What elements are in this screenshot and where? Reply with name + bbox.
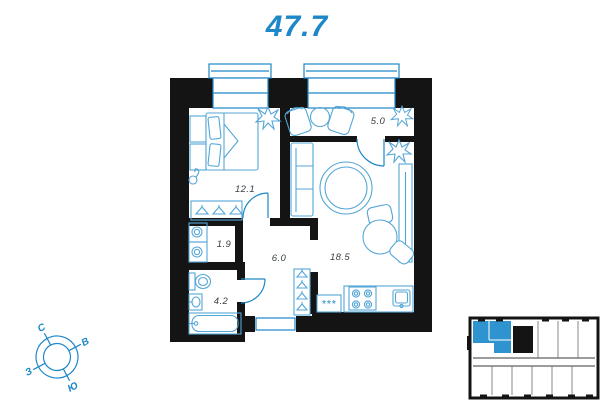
- bathroom-door: [241, 279, 265, 303]
- appliance-placeholder-label: ***: [322, 299, 337, 310]
- bed: [190, 113, 258, 170]
- total-area-title: 47.7: [265, 10, 329, 43]
- round-rug: [320, 162, 372, 214]
- floorplan-page: 47.7: [0, 0, 605, 403]
- bathroom-area-label: 4.2: [214, 296, 229, 307]
- bedroom-wardrobe: [191, 201, 242, 220]
- balcony-door: [357, 139, 384, 166]
- compass-rose: С В Ю З: [8, 307, 107, 403]
- appliance-placeholder-box: ***: [317, 295, 341, 312]
- wall-lamp-icon: [189, 169, 199, 184]
- bedroom-door: [243, 193, 268, 218]
- sofa: [291, 143, 313, 216]
- compass-south-label: Ю: [66, 380, 80, 395]
- dining-set: [363, 204, 416, 266]
- bathtub: [189, 313, 241, 334]
- washer-stack: [189, 223, 207, 262]
- entrance-door: [256, 318, 295, 330]
- kitchen-counter: [344, 286, 413, 312]
- bathroom-sink: [189, 294, 202, 310]
- bedroom-area-label: 12.1: [235, 184, 255, 195]
- living-kitchen-area-label: 18.5: [330, 252, 350, 263]
- bedroom-plant-icon: [256, 107, 280, 129]
- storage-area-label: 1.9: [217, 239, 232, 250]
- compass-east-label: В: [80, 336, 92, 349]
- compass-west-label: З: [24, 366, 35, 379]
- coat-rack: [294, 269, 310, 315]
- toilet: [189, 273, 211, 290]
- balcony-plant-icon: [391, 106, 413, 126]
- balcony-chair-right: [327, 104, 356, 136]
- balcony-window: [304, 64, 399, 108]
- living-plant-icon: [387, 140, 411, 162]
- hallway-area-label: 6.0: [272, 253, 287, 264]
- floorplan-canvas: 47.7: [0, 0, 605, 403]
- balcony-area-label: 5.0: [371, 116, 386, 127]
- bedroom-window: [209, 64, 271, 108]
- building-minimap: [467, 318, 598, 398]
- minimap-core: [513, 326, 533, 353]
- balcony-pouf: [311, 108, 330, 127]
- compass-north-label: С: [36, 321, 48, 334]
